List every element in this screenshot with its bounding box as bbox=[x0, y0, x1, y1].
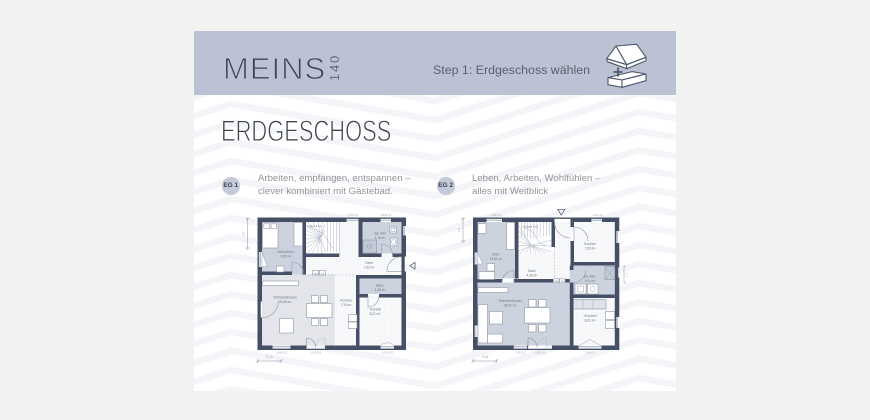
svg-text:1,135/1,23: 1,135/1,23 bbox=[347, 215, 359, 217]
svg-text:Wohnen/Essen: Wohnen/Essen bbox=[274, 296, 297, 300]
svg-text:20,65 m²: 20,65 m² bbox=[279, 300, 292, 304]
svg-text:3,63: 3,63 bbox=[244, 231, 246, 236]
svg-text:0,76/1,005: 0,76/1,005 bbox=[382, 353, 394, 355]
svg-text:Treppe 1-18: Treppe 1-18 bbox=[307, 224, 322, 228]
svg-text:Gä.-WC: Gä.-WC bbox=[374, 232, 387, 236]
svg-text:WM: WM bbox=[314, 273, 318, 275]
svg-text:Diele: Diele bbox=[365, 261, 373, 265]
svg-text:TR: TR bbox=[561, 281, 564, 283]
svg-text:1,885/1,23: 1,885/1,23 bbox=[276, 353, 288, 355]
svg-text:8,21 m²: 8,21 m² bbox=[370, 312, 381, 316]
svg-text:Gard.: Gard. bbox=[376, 284, 385, 288]
svg-text:4,25 m²: 4,25 m² bbox=[375, 288, 386, 292]
svg-text:2,385/2,26: 2,385/2,26 bbox=[310, 353, 322, 355]
svg-text:7,10 m²: 7,10 m² bbox=[341, 303, 352, 307]
svg-text:2,26: 2,26 bbox=[459, 227, 461, 232]
svg-text:TR: TR bbox=[321, 273, 324, 275]
svg-text:Treppe 1-18: Treppe 1-18 bbox=[524, 225, 539, 229]
svg-text:Du./WC: Du./WC bbox=[584, 275, 596, 279]
svg-text:9,59 m²: 9,59 m² bbox=[281, 255, 292, 259]
svg-text:1,635/1,23: 1,635/1,23 bbox=[490, 215, 502, 217]
svg-text:Wohnen/Essen: Wohnen/Essen bbox=[499, 299, 522, 303]
svg-text:2,385/2,26: 2,385/2,26 bbox=[535, 353, 547, 355]
svg-text:4,30 m²: 4,30 m² bbox=[527, 274, 538, 278]
svg-text:8,01 m²: 8,01 m² bbox=[585, 319, 596, 323]
svg-text:5,10: 5,10 bbox=[266, 355, 273, 359]
svg-text:14,61 m²: 14,61 m² bbox=[490, 257, 503, 261]
svg-text:5,48: 5,48 bbox=[482, 355, 489, 359]
svg-text:1,01/1,23: 1,01/1,23 bbox=[593, 215, 603, 217]
svg-text:0,985/1,23: 0,985/1,23 bbox=[380, 215, 392, 217]
svg-text:WM: WM bbox=[554, 281, 558, 283]
svg-text:Gard.: Gard. bbox=[528, 269, 537, 273]
svg-text:Kochen: Kochen bbox=[584, 242, 596, 246]
svg-text:+Kochen: +Kochen bbox=[583, 314, 597, 318]
svg-text:2,26/1,23: 2,26/1,23 bbox=[585, 353, 595, 355]
svg-text:Technik: Technik bbox=[369, 308, 381, 312]
svg-text:7,66 m²: 7,66 m² bbox=[585, 247, 596, 251]
svg-text:7,62 m²: 7,62 m² bbox=[364, 266, 375, 270]
svg-text:Kochen: Kochen bbox=[340, 299, 352, 303]
svg-text:1,76/1,23: 1,76/1,23 bbox=[516, 353, 526, 355]
svg-text:1,11: 1,11 bbox=[627, 272, 629, 277]
svg-text:34,52 m²: 34,52 m² bbox=[504, 304, 517, 308]
svg-text:Büro: Büro bbox=[492, 253, 499, 257]
svg-text:4,16 m²: 4,16 m² bbox=[375, 236, 386, 240]
svg-text:Wohn/Büro: Wohn/Büro bbox=[278, 250, 295, 254]
svg-text:5,04 m²: 5,04 m² bbox=[585, 279, 596, 283]
